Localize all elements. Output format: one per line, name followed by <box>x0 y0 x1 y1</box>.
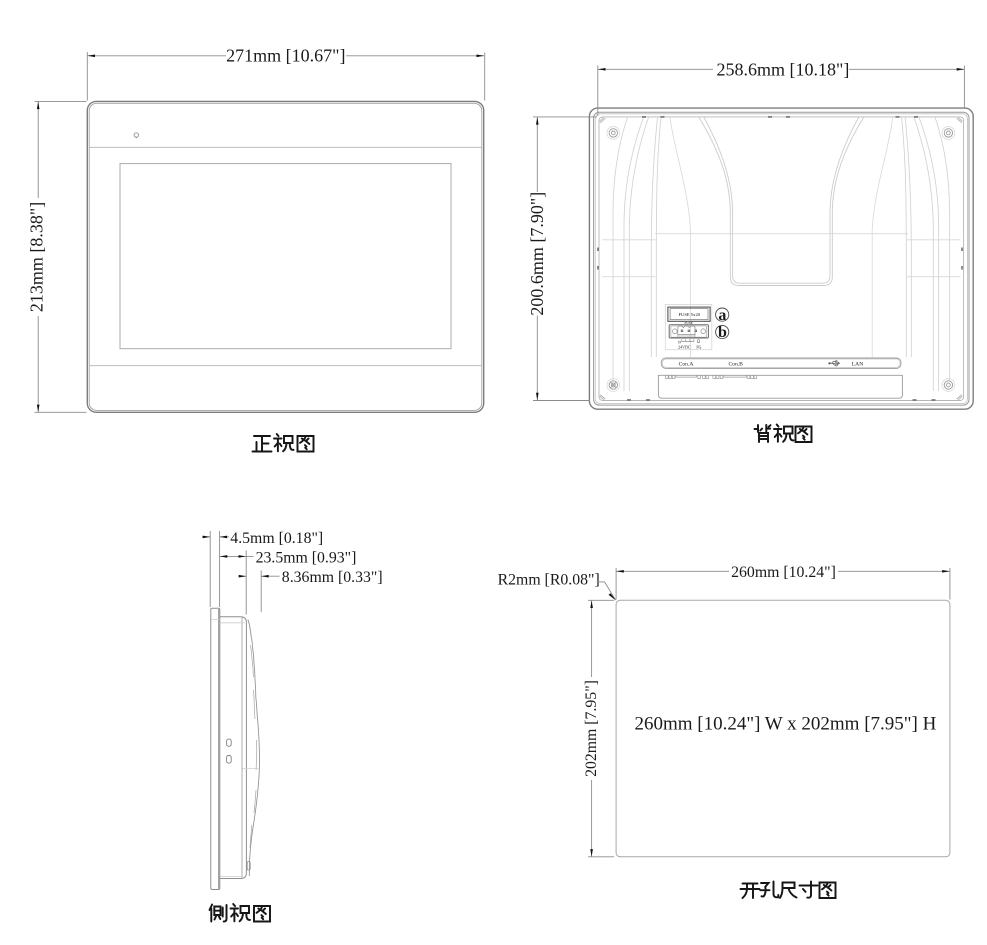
svg-text:23.5mm [0.93"]: 23.5mm [0.93"] <box>256 549 357 566</box>
svg-text:258.6mm [10.18"]: 258.6mm [10.18"] <box>716 60 849 80</box>
svg-text:FUSE 5x20: FUSE 5x20 <box>679 312 701 317</box>
svg-text:8.36mm [0.33"]: 8.36mm [0.33"] <box>282 569 383 586</box>
svg-text:200.6mm [7.90"]: 200.6mm [7.90"] <box>527 192 547 316</box>
svg-text:260mm [10.24"] W x 202mm [7.95: 260mm [10.24"] W x 202mm [7.95"] H <box>634 713 936 734</box>
svg-text:4.5mm [0.18"]: 4.5mm [0.18"] <box>230 530 323 547</box>
svg-text:213mm [8.38"]: 213mm [8.38"] <box>26 202 46 312</box>
svg-text:Con.B: Con.B <box>728 361 743 367</box>
svg-text:FG: FG <box>696 344 701 349</box>
svg-text:a: a <box>718 307 726 324</box>
svg-text:Con.A: Con.A <box>679 361 694 367</box>
svg-text:R2mm [R0.08"]: R2mm [R0.08"] <box>498 572 600 589</box>
svg-text:271mm [10.67"]: 271mm [10.67"] <box>226 46 345 66</box>
svg-text:LAN: LAN <box>852 361 864 367</box>
svg-text:24VDC: 24VDC <box>678 344 691 349</box>
svg-text:b: b <box>718 324 727 341</box>
svg-text:202mm [7.95"]: 202mm [7.95"] <box>583 680 600 777</box>
svg-text:260mm [10.24"]: 260mm [10.24"] <box>731 564 836 581</box>
